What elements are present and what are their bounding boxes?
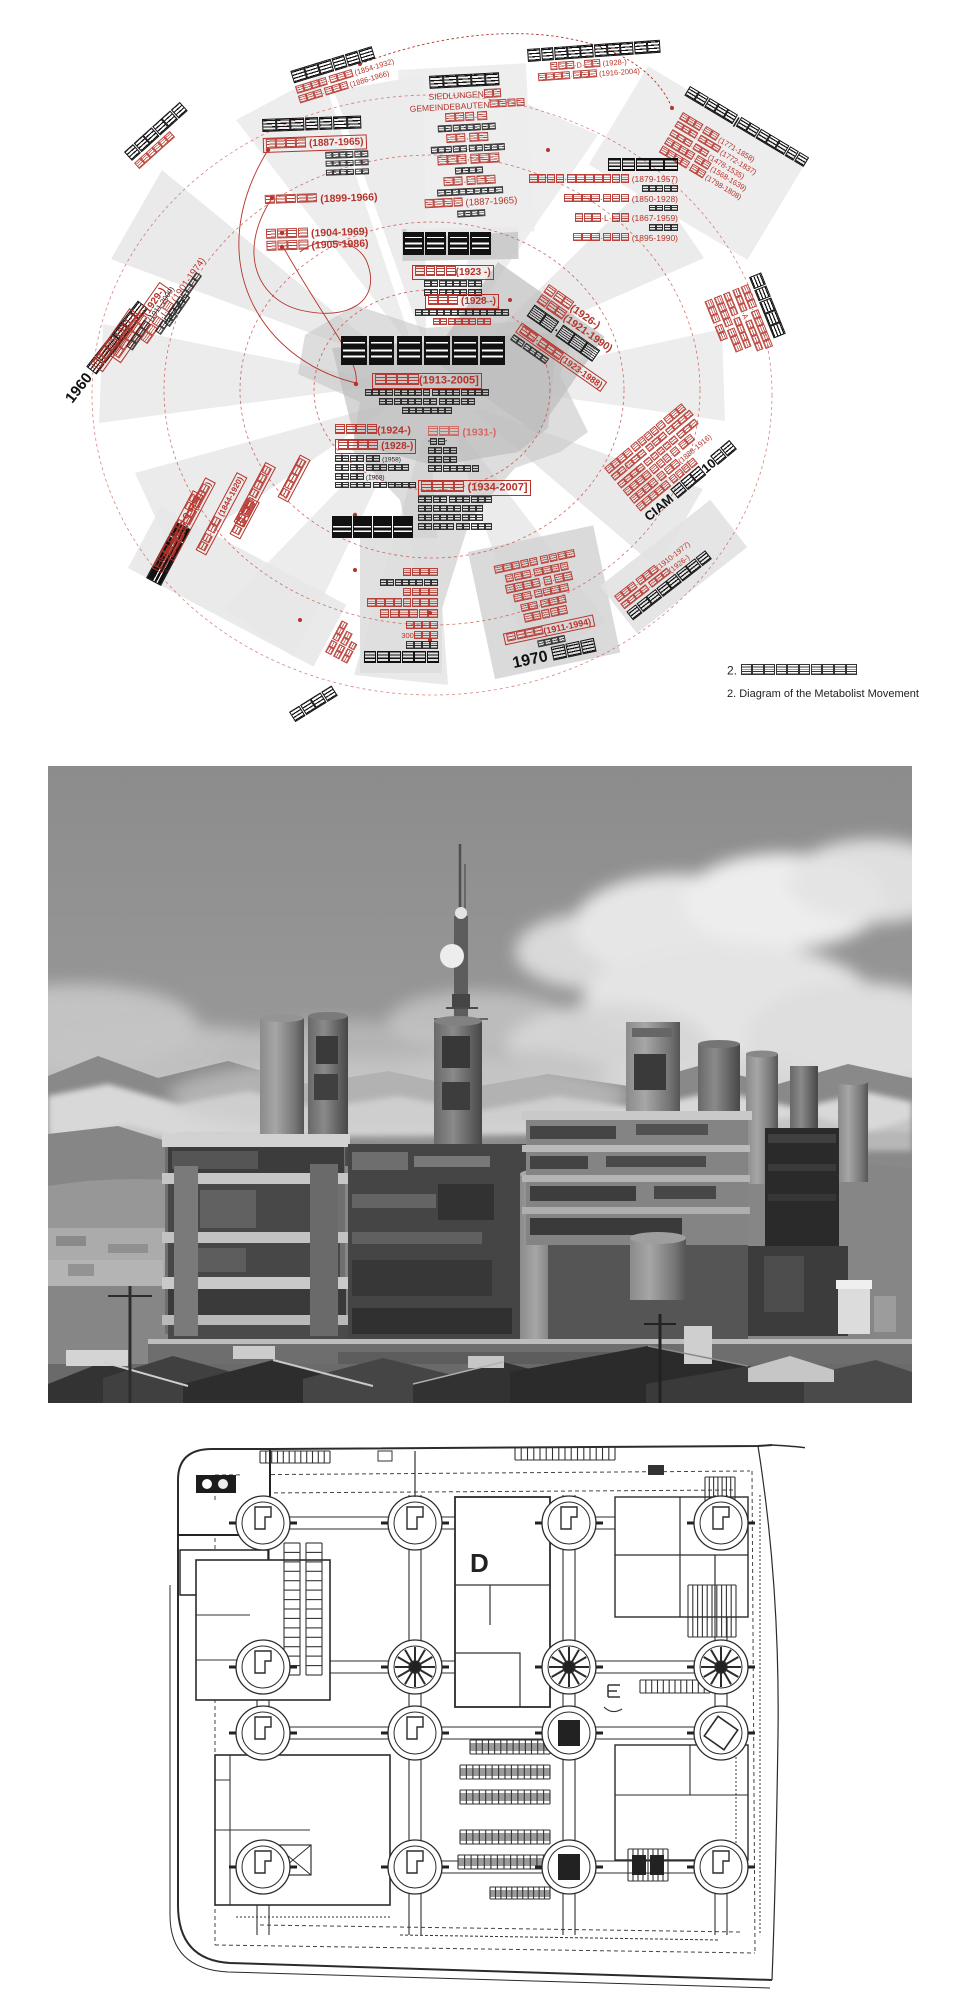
svg-text:D: D	[470, 1548, 489, 1578]
